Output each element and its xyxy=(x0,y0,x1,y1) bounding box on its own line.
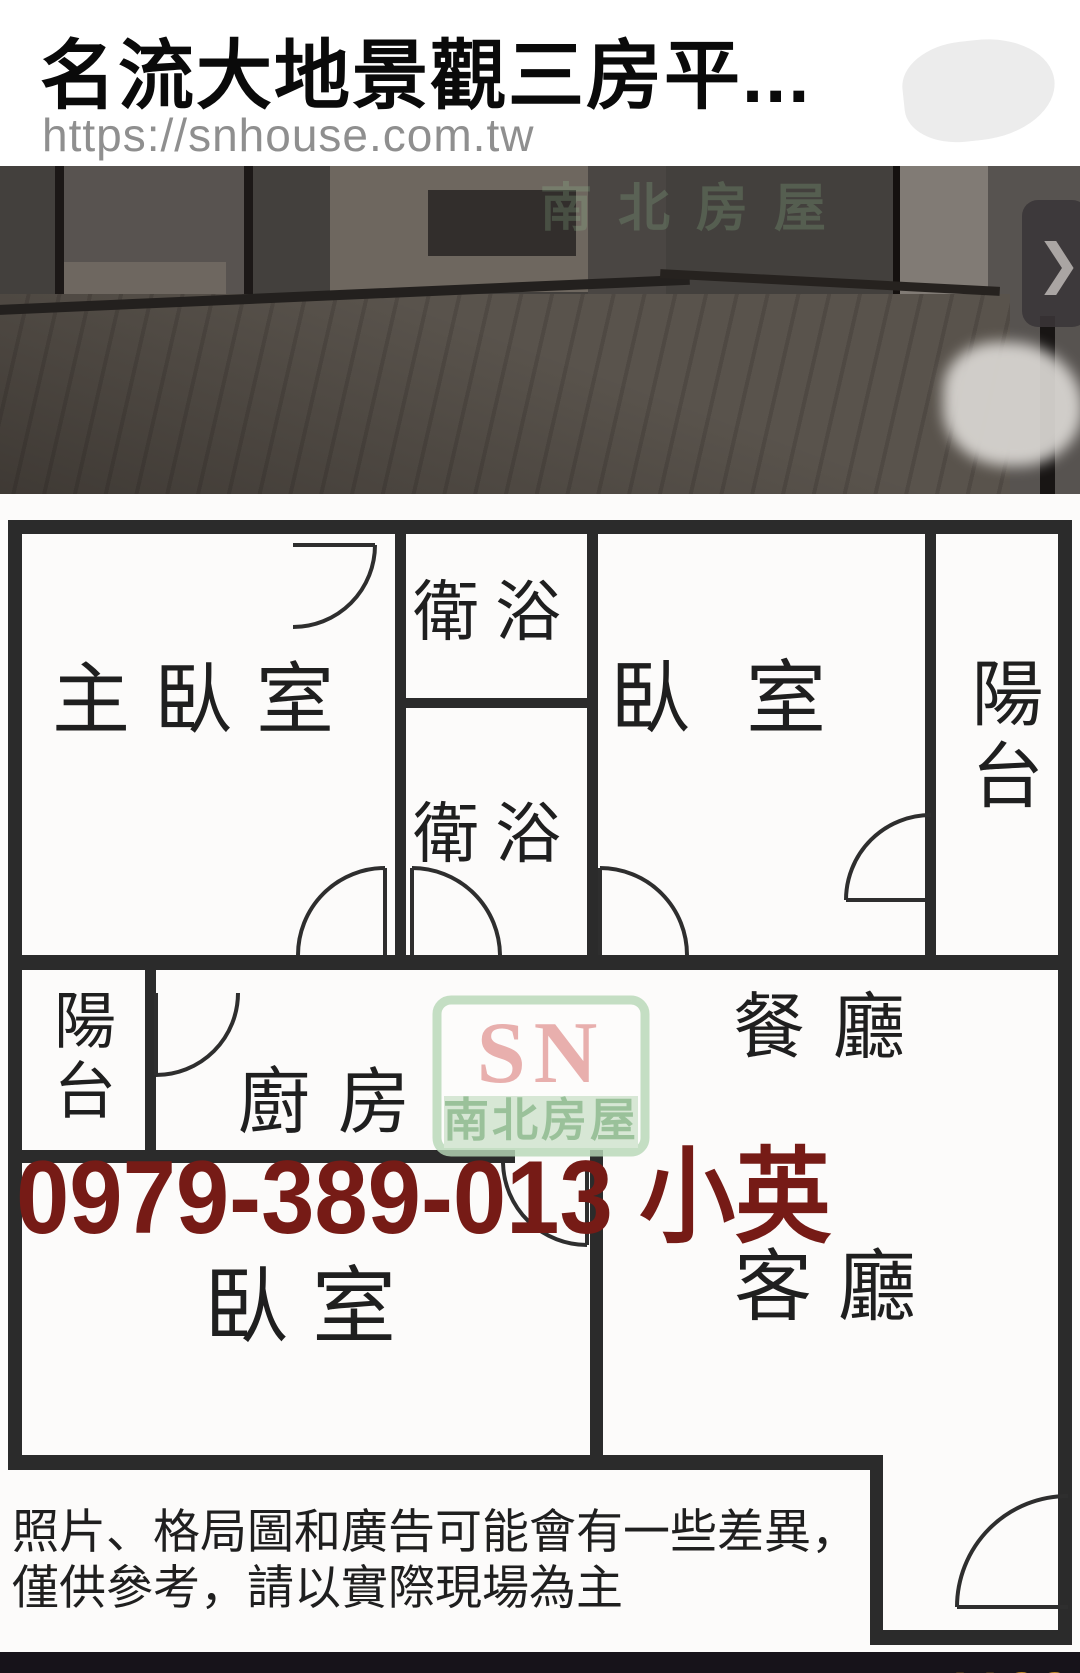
page-url[interactable]: https://snhouse.com.tw xyxy=(42,108,534,162)
room-label-bathroom-top: 衛浴 xyxy=(413,577,577,650)
link-preview-header: 名流大地景觀三房平... https://snhouse.com.tw xyxy=(0,0,1080,166)
sn-watermark-company: 南北房屋 xyxy=(443,1094,639,1146)
room-label-master-bedroom: 主臥室 xyxy=(52,657,358,744)
agent-phone-overlay: 0979-389-013 小英 xyxy=(16,1140,832,1256)
next-listing-price-cutoff: 1199 xyxy=(943,1659,1073,1673)
floor-plan-image: 主臥室 衛浴 衛浴 臥室 陽台 陽台 廚房 餐廳 臥室 客廳 SN 南北房屋 0… xyxy=(0,0,1080,1673)
sn-watermark: SN 南北房屋 xyxy=(437,1000,645,1152)
next-listing-row[interactable]: 名流大地景觀三房平車 1199 xyxy=(0,1652,1080,1673)
sn-watermark-initials: SN xyxy=(477,1005,606,1102)
room-label-living-room: 客廳 xyxy=(734,1244,942,1331)
room-label-bedroom-bottom: 臥室 xyxy=(204,1262,420,1355)
room-label-balcony-left: 陽台 xyxy=(44,988,112,1128)
room-label-dining-room: 餐廳 xyxy=(733,988,933,1068)
room-label-bedroom-right: 臥室 xyxy=(610,656,882,744)
room-label-kitchen: 廚房 xyxy=(238,1063,438,1143)
room-label-bathroom-mid: 衛浴 xyxy=(413,799,577,872)
disclaimer-line1: 照片、格局圖和廣告可能會有一些差異， xyxy=(12,1507,858,1559)
room-label-balcony-right: 陽台 xyxy=(960,656,1040,820)
next-listing-title-cutoff: 名流大地景觀三房平車 xyxy=(8,1658,778,1673)
disclaimer-line2: 僅供參考，請以實際現場為主 xyxy=(12,1563,623,1615)
